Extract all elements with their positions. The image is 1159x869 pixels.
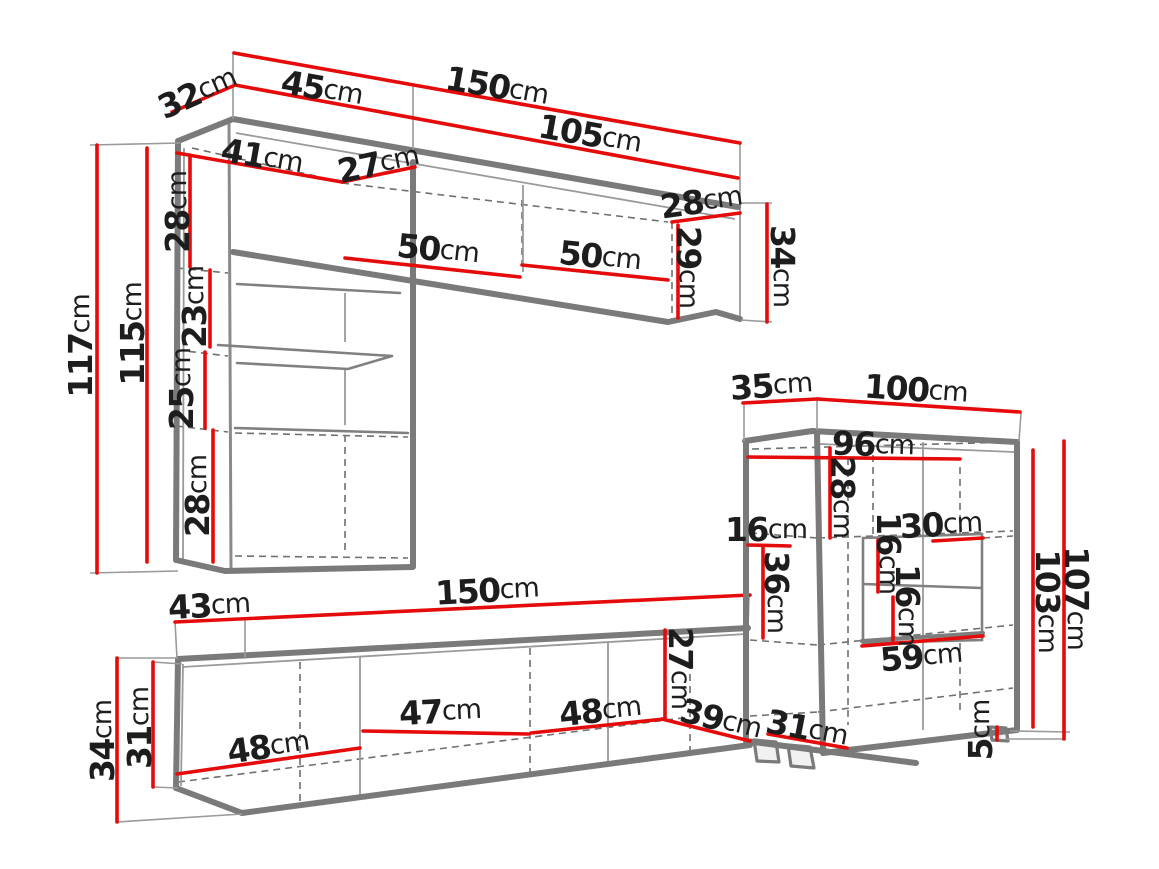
dim-label-28-column-top: 28cm bbox=[158, 171, 197, 253]
dim-label-41-inner-width: 41cm bbox=[218, 130, 306, 183]
dim-label-115-column-height: 115cm bbox=[113, 282, 152, 386]
diagram-line bbox=[750, 640, 818, 645]
dim-label-117-column-height: 117cm bbox=[61, 294, 100, 398]
dim-label-23-shelf-gap: 23cm bbox=[175, 266, 214, 348]
diagram-line bbox=[182, 634, 746, 667]
diagram-svg: 32cm45cm150cm105cm41cm27cm28cm117cm115cm… bbox=[0, 0, 1159, 869]
dim-label-16-sideboard-left: 16cm bbox=[725, 510, 807, 549]
dim-label-47-stand-middle: 47cm bbox=[398, 689, 482, 732]
diagram-line bbox=[817, 432, 823, 753]
dim-label-31-stand-inner: 31cm bbox=[120, 687, 159, 769]
dim-label-25-shelf-gap: 25cm bbox=[162, 348, 201, 430]
diagram-line bbox=[237, 356, 392, 369]
diagram-line bbox=[153, 787, 178, 788]
diagram-line bbox=[1010, 731, 1070, 732]
diagram-line bbox=[363, 731, 528, 734]
diagram-line bbox=[235, 556, 408, 558]
diagram-line bbox=[90, 571, 178, 573]
dim-label-59-niche-bottom: 59cm bbox=[878, 633, 963, 679]
dim-label-107-sideboard-total: 107cm bbox=[1058, 546, 1097, 650]
dim-label-105-top-width: 105cm bbox=[536, 106, 645, 162]
diagram-line bbox=[181, 664, 183, 786]
dim-label-34-stand-height: 34cm bbox=[83, 700, 122, 782]
dim-label-28-sideboard-top: 28cm bbox=[824, 456, 863, 538]
diagram-line bbox=[235, 433, 408, 437]
diagram-line bbox=[90, 143, 180, 145]
diagram-line bbox=[176, 659, 178, 788]
dimension-labels: 32cm45cm150cm105cm41cm27cm28cm117cm115cm… bbox=[61, 57, 1097, 782]
dim-label-28-column-bottom: 28cm bbox=[178, 455, 217, 537]
dim-label-27-stand-end: 27cm bbox=[662, 627, 701, 709]
dim-label-150-top-width: 150cm bbox=[443, 58, 552, 114]
dim-label-48-stand-left: 48cm bbox=[225, 721, 312, 771]
dim-label-5-foot-height: 5cm bbox=[961, 700, 1000, 761]
dim-label-100-sideboard-width: 100cm bbox=[863, 366, 969, 412]
dim-label-36-sideboard-left: 36cm bbox=[758, 551, 797, 633]
dim-label-29-cabinet-end-inner: 29cm bbox=[670, 226, 709, 308]
dim-label-16-niche-lower: 16cm bbox=[889, 564, 928, 646]
dim-label-32-top-depth: 32cm bbox=[152, 57, 243, 126]
diagram-line bbox=[1019, 413, 1021, 441]
diagram-line bbox=[237, 284, 400, 293]
diagram-line bbox=[235, 428, 408, 433]
diagram-line bbox=[176, 788, 242, 813]
diagram-line bbox=[117, 814, 242, 822]
dim-label-48-stand-right: 48cm bbox=[557, 686, 643, 733]
dim-label-45-top-width: 45cm bbox=[278, 62, 366, 115]
diagram-line bbox=[983, 536, 1013, 538]
furniture-dimension-diagram: 32cm45cm150cm105cm41cm27cm28cm117cm115cm… bbox=[0, 0, 1159, 869]
diagram-line bbox=[218, 345, 392, 356]
diagram-line bbox=[175, 622, 177, 658]
dim-label-50-cabinet-right: 50cm bbox=[557, 232, 643, 279]
dim-label-34-cabinet-end-height: 34cm bbox=[764, 225, 803, 307]
